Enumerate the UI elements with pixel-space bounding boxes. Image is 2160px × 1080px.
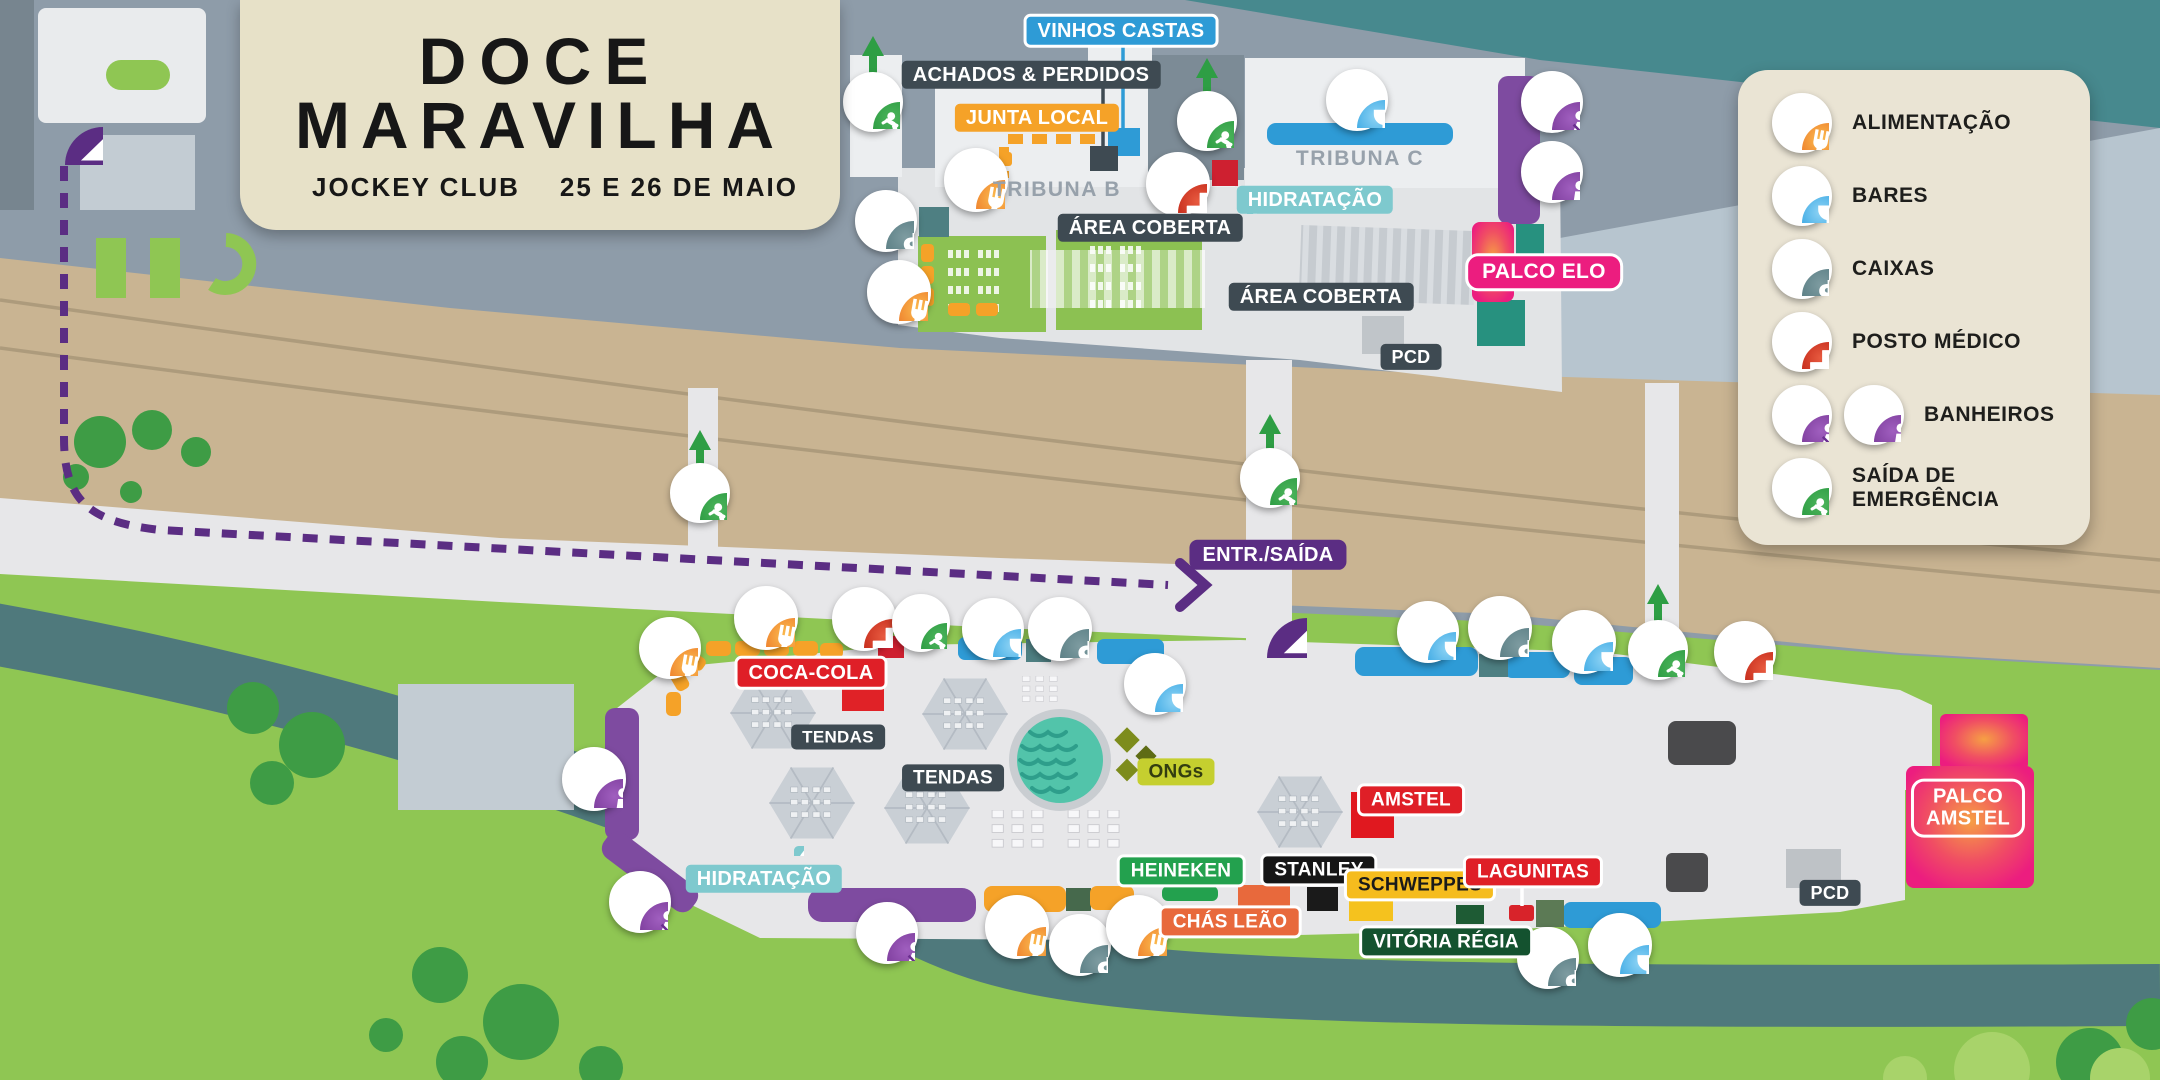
label-heineken: HEINEKEN <box>1117 854 1246 887</box>
label-achados-perdidos: ACHADOS & PERDIDOS <box>902 61 1161 89</box>
festival-map: $ <box>0 0 2160 1080</box>
cash-icon <box>1028 597 1092 661</box>
label-lagunitas: LAGUNITAS <box>1463 855 1603 888</box>
label-entr-saida: ENTR./SAÍDA <box>1189 540 1346 570</box>
wc-male-icon <box>562 747 626 811</box>
food-icon <box>1772 93 1832 153</box>
event-dates: 25 E 26 DE MAIO <box>560 172 798 203</box>
bar-icon <box>1588 913 1652 977</box>
label-coca-cola: COCA-COLA <box>735 656 888 690</box>
bar-icon <box>1397 601 1459 663</box>
legend-label: SAÍDA DE EMERGÊNCIA <box>1852 464 2090 512</box>
legend-item-bares: BARES <box>1772 159 2090 232</box>
label-area-coberta-1: ÁREA COBERTA <box>1058 214 1243 242</box>
legend-label: CAIXAS <box>1852 257 1934 281</box>
emergency-exit-icon <box>1240 448 1300 508</box>
legend-item-saida-emergencia: SAÍDA DE EMERGÊNCIA <box>1772 451 2090 524</box>
label-vitoria-regia: VITÓRIA RÉGIA <box>1359 925 1533 958</box>
emergency-exit-icon <box>843 72 903 132</box>
label-pcd-2: PCD <box>1800 880 1861 906</box>
bar-icon <box>1326 69 1388 131</box>
label-ongs: ONGs <box>1137 758 1214 785</box>
entrance-exit-icon <box>1227 578 1307 658</box>
food-icon <box>639 617 701 679</box>
event-title-line2: MARAVILHA <box>240 93 840 158</box>
medical-icon <box>1146 152 1210 216</box>
food-icon <box>734 586 798 650</box>
wc-female-icon <box>1772 385 1832 445</box>
label-hidratacao-2: HIDRATAÇÃO <box>686 865 842 893</box>
label-palco-elo: PALCO ELO <box>1465 253 1623 291</box>
wc-male-icon <box>1521 141 1583 203</box>
emergency-exit-icon <box>1628 620 1688 680</box>
label-amstel: AMSTEL <box>1357 783 1465 816</box>
legend-item-alimentacao: ALIMENTAÇÃO <box>1772 86 2090 159</box>
legend-item-banheiros: BANHEIROS <box>1772 378 2090 451</box>
cash-icon <box>1049 914 1111 976</box>
bar-icon <box>1124 653 1186 715</box>
hydration-drop-icon <box>784 836 804 856</box>
emergency-exit-icon <box>1772 458 1832 518</box>
legend-label: BANHEIROS <box>1924 403 2055 427</box>
emergency-exit-icon <box>670 463 730 523</box>
event-title-line1: DOCE <box>240 30 840 93</box>
label-junta-local: JUNTA LOCAL <box>955 104 1119 132</box>
label-tribuna-c: TRIBUNA C <box>1285 144 1435 174</box>
legend-item-caixas: CAIXAS <box>1772 232 2090 305</box>
label-tribuna-b: TRIBUNA B <box>982 175 1132 205</box>
medical-icon <box>1714 621 1776 683</box>
medical-icon <box>832 587 896 651</box>
food-icon <box>985 895 1049 959</box>
legend-item-posto-medico: POSTO MÉDICO <box>1772 305 2090 378</box>
venue-name: JOCKEY CLUB <box>312 172 520 203</box>
legend-label: ALIMENTAÇÃO <box>1852 111 2011 135</box>
title-card: DOCE MARAVILHA JOCKEY CLUB 25 E 26 DE MA… <box>240 0 840 230</box>
label-tendas-2: TENDAS <box>902 764 1004 791</box>
cash-icon <box>855 190 917 252</box>
cash-icon <box>1772 239 1832 299</box>
label-tendas-1: TENDAS <box>791 724 885 749</box>
cash-icon <box>1468 596 1532 660</box>
label-palco-amstel: PALCO AMSTEL <box>1911 779 2025 838</box>
wc-female-icon <box>1521 71 1583 133</box>
bar-icon <box>1772 166 1832 226</box>
entrance-exit-icon <box>27 89 103 165</box>
label-hidratacao-1: HIDRATAÇÃO <box>1237 186 1393 214</box>
bar-icon <box>1552 610 1616 674</box>
emergency-exit-icon <box>1177 91 1237 151</box>
emergency-exit-icon <box>892 594 950 652</box>
label-pcd-1: PCD <box>1381 344 1442 370</box>
legend-label: BARES <box>1852 184 1928 208</box>
medical-icon <box>1772 312 1832 372</box>
wc-female-icon <box>856 902 918 964</box>
label-area-coberta-2: ÁREA COBERTA <box>1229 283 1414 311</box>
legend: ALIMENTAÇÃO BARES CAIXAS POSTO MÉDICO BA… <box>1738 70 2090 545</box>
label-vinhos-castas: VINHOS CASTAS <box>1024 14 1219 48</box>
food-icon <box>867 260 931 324</box>
wc-male-icon <box>1844 385 1904 445</box>
label-chas-leao: CHÁS LEÃO <box>1159 905 1302 938</box>
legend-label: POSTO MÉDICO <box>1852 330 2021 354</box>
wc-female-icon <box>609 871 671 933</box>
bar-icon <box>962 598 1024 660</box>
